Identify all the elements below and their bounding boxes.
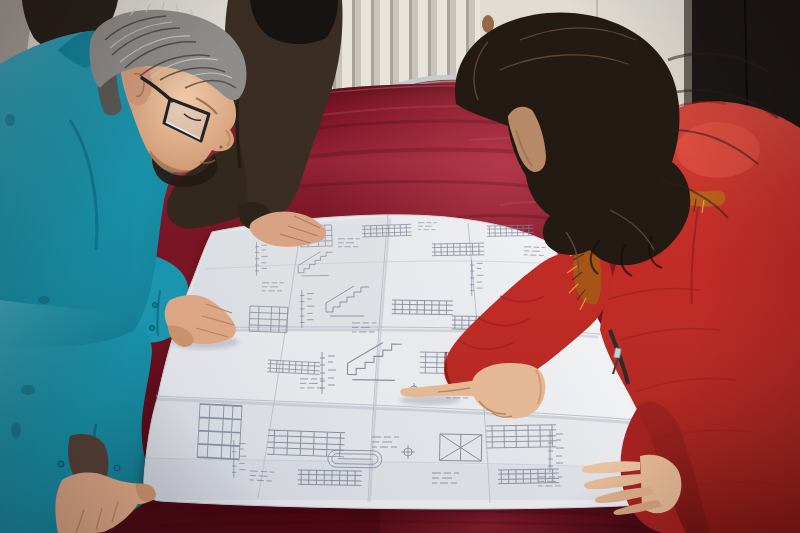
- photo-scene: [0, 0, 800, 533]
- vignette: [0, 0, 800, 533]
